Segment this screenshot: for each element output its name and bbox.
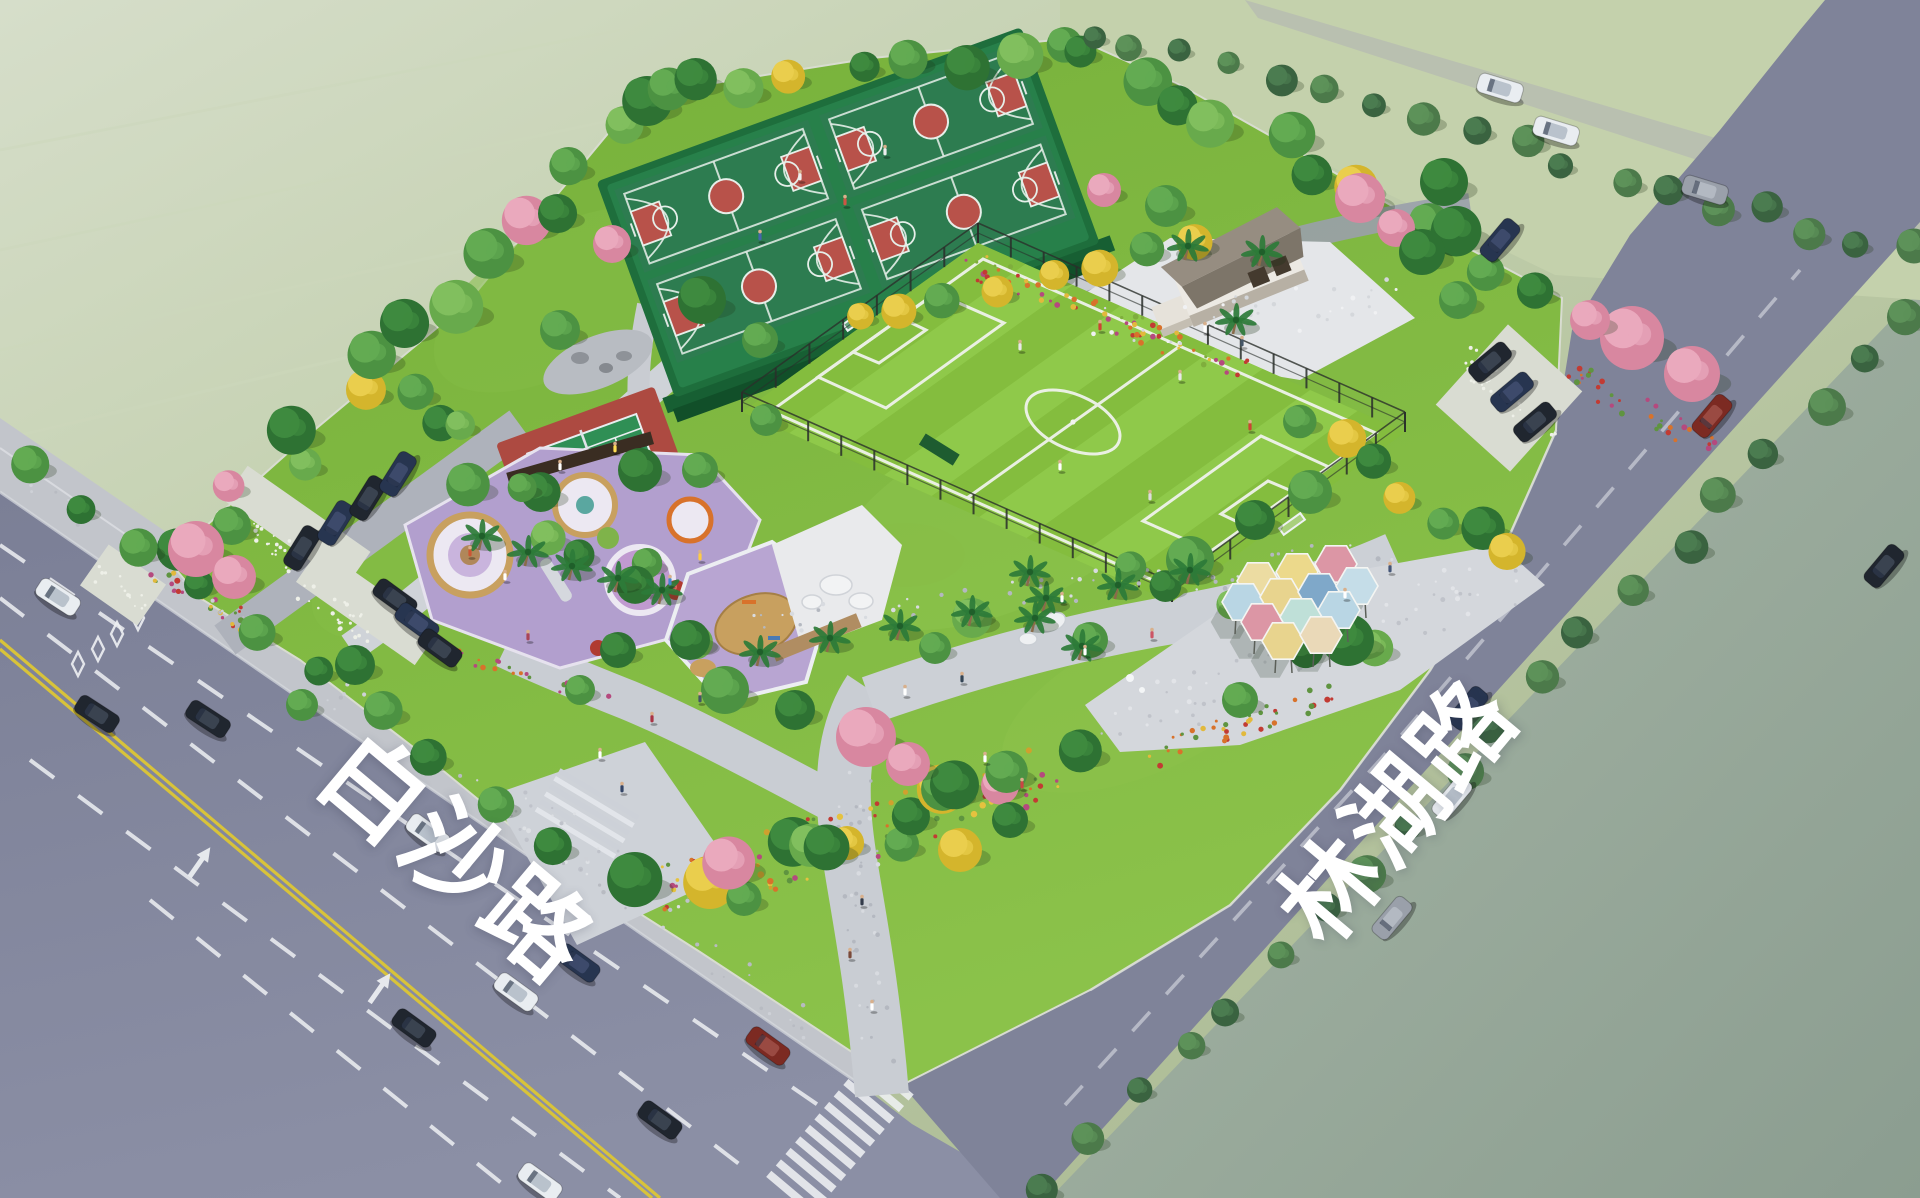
person-head [1150, 628, 1154, 632]
scatter-dot [843, 894, 848, 899]
scatter-dot [975, 261, 978, 264]
scatter-dot [1024, 279, 1028, 283]
person-shadow [599, 759, 606, 762]
tree-canopy-highlight [1667, 183, 1678, 194]
scatter-dot [854, 892, 858, 896]
scatter-dot [1384, 277, 1389, 282]
person-shadow [961, 683, 968, 686]
scatter-dot [528, 676, 532, 680]
person-head [1018, 340, 1022, 344]
scatter-dot [303, 584, 306, 587]
person [1203, 325, 1206, 332]
scatter-dot [1349, 544, 1351, 546]
palm-crown [569, 563, 575, 569]
scatter-dot [845, 813, 847, 815]
person [650, 715, 653, 722]
tree-canopy-highlight [579, 683, 590, 694]
scatter-dot [1106, 316, 1111, 321]
scatter-dot [312, 584, 316, 588]
tree-canopy-highlight [304, 457, 315, 468]
scatter-dot [806, 817, 810, 821]
scatter-dot [279, 546, 283, 550]
person [883, 148, 886, 155]
scatter-dot [1205, 682, 1208, 685]
person-shadow [504, 581, 511, 584]
scatter-dot [1128, 706, 1132, 710]
scatter-dot [1586, 373, 1591, 378]
play-circle-small [597, 527, 619, 549]
scatter-dot [221, 616, 224, 619]
person-shadow [861, 906, 868, 909]
scatter-dot [1155, 680, 1160, 685]
scatter-dot [1141, 316, 1145, 320]
tree-canopy-highlight [1178, 45, 1186, 53]
person-shadow [1099, 331, 1106, 334]
scatter-dot [357, 634, 361, 638]
scatter-dot [1167, 749, 1170, 752]
scatter-dot [287, 569, 291, 573]
tree-canopy-highlight [521, 481, 531, 491]
tree-canopy-highlight [1358, 186, 1376, 204]
sculpture [1019, 633, 1037, 645]
scatter-dot [870, 1036, 873, 1039]
scatter-dot [1417, 583, 1419, 585]
scatter-dot [828, 817, 833, 822]
scatter-dot [525, 672, 529, 676]
scatter-dot [1100, 732, 1102, 734]
scatter-dot [1256, 312, 1259, 315]
tree-canopy-highlight [700, 289, 717, 306]
scatter-dot [1157, 763, 1163, 769]
scatter-dot [1215, 720, 1218, 723]
palm-crown [1185, 243, 1191, 249]
scatter-dot [1245, 296, 1249, 300]
scatter-dot [559, 821, 563, 825]
scatter-dot [1200, 726, 1205, 731]
scatter-dot [1214, 580, 1218, 584]
scatter-dot [1451, 586, 1455, 590]
scatter-dot [1307, 688, 1313, 694]
scatter-dot [868, 816, 872, 820]
person-head [1060, 592, 1064, 596]
palm-crown [1233, 317, 1239, 323]
tree-canopy-highlight [632, 867, 651, 886]
scatter-dot [275, 553, 277, 555]
scatter-dot [875, 801, 880, 806]
person-head [983, 752, 987, 756]
tree-canopy-highlight [1086, 1131, 1097, 1142]
scatter-dot [885, 1005, 890, 1010]
scatter-dot [1653, 404, 1658, 409]
tree-canopy-highlight [940, 292, 952, 304]
scatter-dot [1405, 618, 1408, 621]
scatter-dot [787, 878, 793, 884]
scatter-dot [1183, 305, 1187, 309]
scatter-dot [1649, 414, 1654, 419]
scatter-dot [971, 811, 977, 817]
scatter-dot [1310, 544, 1314, 548]
person [1148, 493, 1151, 500]
scatter-dot [859, 864, 863, 868]
scatter-dot [748, 962, 752, 966]
scatter-dot [1102, 311, 1107, 316]
scatter-dot [283, 549, 286, 552]
tree-canopy-highlight [616, 642, 629, 655]
scatter-dot [176, 589, 181, 594]
scatter-dot [1235, 373, 1240, 378]
scatter-dot [1190, 728, 1195, 733]
scatter-dot [1610, 393, 1614, 397]
scatter-dot [1660, 419, 1663, 422]
scatter-dot [134, 605, 136, 607]
tree-canopy-highlight [694, 69, 709, 84]
scatter-dot [1514, 603, 1517, 606]
scatter-dot [1156, 334, 1161, 339]
sculpture-bird [1126, 674, 1134, 682]
person [558, 463, 561, 470]
person-shadow [759, 241, 766, 244]
person [526, 633, 529, 640]
palm-crown [1259, 249, 1265, 255]
scatter-dot [1222, 738, 1227, 743]
tree-canopy-highlight [1825, 398, 1838, 411]
scatter-dot [1217, 672, 1219, 674]
scatter-dot [1382, 620, 1385, 623]
scatter-dot [1475, 349, 1478, 352]
person [1248, 423, 1251, 430]
tree-canopy-highlight [1626, 176, 1636, 186]
scatter-dot [1272, 302, 1276, 306]
scatter-dot [861, 910, 864, 913]
scatter-dot [792, 875, 798, 881]
person-shadow [1084, 656, 1091, 659]
tree-canopy-highlight [996, 284, 1007, 295]
scatter-dot [1167, 340, 1170, 343]
tree-canopy-highlight [906, 754, 921, 769]
scatter-dot [1350, 296, 1355, 301]
tree-canopy-highlight [466, 474, 481, 489]
person-head [558, 460, 562, 464]
scatter-dot [979, 802, 985, 808]
person-shadow [699, 703, 706, 706]
scatter-dot [1128, 325, 1132, 329]
scatter-dot [1275, 711, 1278, 714]
scatter-dot [1157, 325, 1163, 331]
tree-canopy-highlight [80, 503, 90, 513]
scatter-dot [1109, 330, 1114, 335]
tree-canopy-highlight [1102, 182, 1114, 194]
scatter-dot [784, 870, 789, 875]
scatter-dot [876, 854, 881, 859]
person-shadow [651, 723, 658, 726]
scatter-dot [858, 1004, 861, 1007]
tree-canopy-highlight [1280, 949, 1289, 958]
tree-canopy-highlight [255, 624, 268, 637]
scatter-dot [916, 605, 919, 608]
scatter-dot [1177, 347, 1180, 350]
tree-canopy-highlight [1476, 124, 1486, 134]
person-head [1098, 320, 1102, 324]
scatter-dot [789, 1019, 791, 1021]
scatter-dot [525, 797, 527, 799]
person [1150, 631, 1153, 638]
rock [571, 352, 589, 364]
scatter-dot [98, 565, 101, 568]
person-shadow [984, 763, 991, 766]
person-shadow [1061, 603, 1068, 606]
tree-canopy-highlight [1903, 309, 1916, 322]
scatter-dot [859, 805, 862, 808]
person-shadow [904, 696, 911, 699]
scatter-dot [668, 908, 672, 912]
scatter-dot [1645, 398, 1649, 402]
tree-canopy-highlight [546, 530, 558, 542]
scatter-dot [351, 630, 353, 632]
scatter-dot [1197, 722, 1201, 726]
scatter-dot [1376, 556, 1381, 561]
scatter-dot [274, 549, 277, 552]
person-head [668, 575, 672, 579]
person [668, 578, 671, 585]
scatter-dot [939, 593, 943, 597]
tree-canopy-highlight [1224, 1006, 1234, 1016]
scatter-dot [1033, 798, 1038, 803]
person [1018, 343, 1021, 350]
tree-canopy-highlight [863, 723, 884, 744]
scatter-dot [1074, 599, 1078, 603]
sculpture-bird [1139, 687, 1145, 693]
scatter-dot [1114, 712, 1117, 715]
scatter-dot [1064, 293, 1069, 298]
scatter-dot [1673, 438, 1677, 442]
scatter-dot [1056, 785, 1059, 788]
scatter-dot [1567, 374, 1571, 378]
palm-crown [897, 623, 903, 629]
scatter-dot [1091, 301, 1097, 307]
tree-canopy-highlight [1208, 112, 1225, 129]
person-head [758, 230, 762, 234]
person [503, 573, 506, 580]
scatter-dot [873, 814, 876, 817]
scatter-dot [1195, 588, 1198, 591]
scatter-dot [1025, 283, 1030, 288]
scatter-dot [1120, 316, 1123, 319]
scatter-dot [1232, 299, 1236, 303]
scatter-dot [1188, 686, 1193, 691]
person-head [503, 570, 507, 574]
scatter-dot [624, 907, 627, 910]
scatter-dot [1298, 329, 1302, 333]
scatter-dot [1470, 379, 1473, 382]
scatter-dot [1016, 274, 1020, 278]
scatter-dot [854, 948, 859, 953]
scatter-dot [1133, 314, 1139, 320]
scatter-dot [868, 806, 873, 811]
person-head [1343, 588, 1347, 592]
scatter-dot [238, 610, 241, 613]
tree-canopy-highlight [1127, 42, 1136, 51]
scatter-dot [979, 281, 982, 284]
tree-canopy-highlight [1280, 73, 1291, 84]
scatter-dot [1181, 733, 1184, 736]
scatter-dot [1367, 295, 1370, 298]
scatter-dot [519, 671, 523, 675]
tree-canopy-highlight [193, 536, 213, 556]
scatter-dot [285, 566, 288, 569]
person [698, 553, 701, 560]
scatter-dot [1146, 723, 1149, 726]
scatter-dot [676, 878, 680, 882]
tree-canopy-highlight [459, 418, 469, 428]
scatter-dot [1277, 552, 1280, 555]
scatter-dot [94, 580, 98, 584]
person-head [526, 630, 530, 634]
person-shadow [1019, 351, 1026, 354]
person-shadow [469, 557, 476, 560]
scatter-dot [1681, 424, 1687, 430]
tree-canopy-highlight [958, 840, 973, 855]
scatter-dot [1148, 714, 1152, 718]
person [468, 549, 471, 556]
scatter-dot [817, 608, 821, 612]
scatter-dot [1055, 779, 1058, 782]
scatter-dot [1679, 417, 1682, 420]
scatter-dot [1712, 440, 1717, 445]
person-head [860, 895, 864, 899]
scatter-dot [1553, 432, 1557, 436]
scatter-dot [852, 940, 856, 944]
tree-canopy-highlight [1053, 268, 1063, 278]
palm-crown [757, 649, 763, 655]
person [598, 751, 601, 758]
scatter-dot [1159, 719, 1162, 722]
tree-canopy-highlight [317, 664, 327, 674]
scatter-dot [360, 613, 363, 616]
tree-canopy-highlight [1420, 241, 1436, 257]
scatter-dot [1211, 725, 1215, 729]
scatter-dot [551, 814, 553, 816]
scatter-dot [1272, 720, 1277, 725]
person [1388, 565, 1391, 572]
scatter-dot [492, 666, 497, 671]
tree-canopy-highlight [289, 419, 306, 436]
scatter-dot [296, 597, 300, 601]
scatter-dot [1395, 288, 1398, 291]
scatter-dot [1707, 442, 1711, 446]
scatter-dot [1221, 303, 1224, 306]
scatter-dot [339, 695, 343, 699]
scatter-dot [166, 572, 171, 577]
scatter-dot [1039, 298, 1044, 303]
scatter-dot [1454, 590, 1458, 594]
scatter-dot [1464, 362, 1467, 365]
scatter-dot [1224, 729, 1229, 734]
tree-canopy-highlight [698, 462, 711, 475]
scatter-dot [1414, 608, 1418, 612]
scatter-dot [962, 588, 967, 593]
scatter-dot [477, 659, 480, 662]
scatter-dot [1481, 384, 1483, 386]
tree-canopy-highlight [863, 60, 874, 71]
scatter-dot [1202, 702, 1206, 706]
person-head [698, 550, 702, 554]
scatter-dot [1223, 586, 1228, 591]
scatter-dot [1294, 286, 1298, 290]
person-shadow [884, 156, 891, 159]
scatter-dot [1248, 717, 1253, 722]
scatter-dot [1192, 670, 1196, 674]
palm-crown [659, 587, 665, 593]
tree-canopy-highlight [230, 517, 243, 530]
tree-canopy-highlight [1454, 219, 1472, 237]
scatter-dot [1029, 787, 1032, 790]
scatter-dot [1268, 724, 1272, 728]
scatter-dot [1440, 597, 1445, 602]
scatter-dot [866, 1006, 868, 1008]
person-head [1203, 322, 1207, 326]
scatter-dot [353, 635, 357, 639]
tree-canopy-highlight [197, 578, 207, 588]
scatter-dot [1038, 783, 1044, 789]
scatter-dot [769, 886, 773, 890]
scatter-dot [1008, 591, 1013, 596]
scatter-dot [662, 907, 666, 911]
scatter-dot [349, 622, 352, 625]
scatter-dot [1489, 390, 1492, 393]
tree-canopy-highlight [1323, 82, 1333, 92]
tree-canopy-highlight [1575, 625, 1586, 636]
scatter-dot [1138, 340, 1144, 346]
scatter-dot [1208, 358, 1211, 361]
scatter-dot [1390, 558, 1393, 561]
scatter-dot [806, 878, 809, 881]
scatter-dot [1071, 577, 1073, 579]
scatter-dot [606, 694, 611, 699]
scatter-dot [685, 899, 689, 903]
person-head [1020, 778, 1024, 782]
scatter-dot [1134, 332, 1140, 338]
person-shadow [1179, 381, 1186, 384]
scatter-dot [512, 672, 515, 675]
scatter-dot [1384, 603, 1388, 607]
park-masterplan-render: { "meta": { "type": "aerial-landscape-re… [0, 0, 1920, 1198]
tree-canopy-highlight [786, 69, 798, 81]
rock [616, 351, 632, 361]
scatter-dot [1396, 621, 1400, 625]
person [960, 675, 963, 682]
person-head [620, 782, 624, 786]
scatter-dot [1687, 427, 1692, 432]
person-shadow [527, 641, 534, 644]
tree-canopy-highlight [1145, 70, 1162, 87]
scatter-dot [1468, 567, 1472, 571]
person [860, 898, 863, 905]
scatter-dot [903, 790, 908, 795]
scatter-dot [898, 604, 901, 607]
scatter-dot [1309, 703, 1315, 709]
scatter-dot [1177, 334, 1183, 340]
scatter-dot [1104, 307, 1106, 309]
tree-canopy-highlight [1145, 241, 1157, 253]
scatter-dot [1305, 711, 1311, 717]
scatter-dot [1035, 282, 1041, 288]
scatter-dot [1241, 731, 1246, 736]
scatter-dot [1599, 379, 1605, 385]
scatter-dot [119, 575, 122, 578]
scatter-dot [337, 618, 340, 621]
scatter-dot [317, 607, 320, 610]
tree-canopy-highlight [906, 50, 920, 64]
